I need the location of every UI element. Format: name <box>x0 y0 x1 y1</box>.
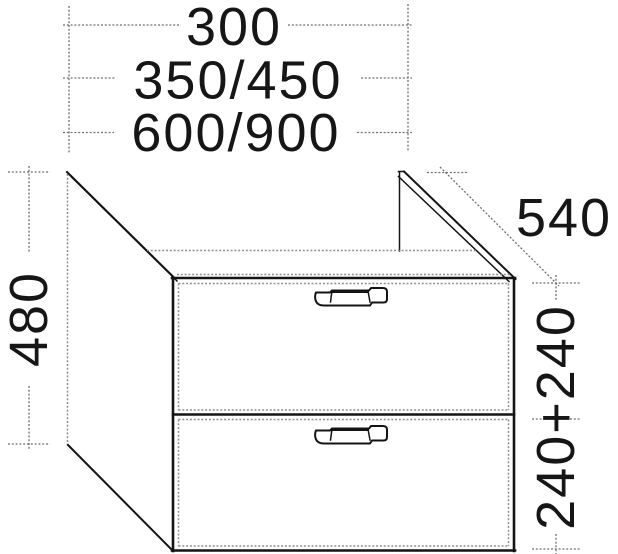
dim-label-drawers-240-240: 240+240 <box>526 304 586 530</box>
carcass-front-face <box>172 275 515 552</box>
dimension-diagram: 300 350/450 600/900 480 540 240+240 <box>0 0 618 554</box>
right-side-panel <box>399 172 516 282</box>
left-side-panel <box>67 172 177 551</box>
drawer-handle-bottom-icon <box>315 426 387 444</box>
diagram-canvas: 300 350/450 600/900 480 540 240+240 <box>0 0 618 554</box>
dim-label-height-480: 480 <box>0 271 59 367</box>
drawer-handle-top-icon <box>315 288 387 306</box>
dim-label-depth-540: 540 <box>516 188 612 248</box>
dim-label-width-600-900: 600/900 <box>131 103 340 163</box>
cabinet-drawing <box>67 172 516 552</box>
dim-label-width-300: 300 <box>186 0 282 57</box>
dim-label-width-350-450: 350/450 <box>133 51 342 111</box>
